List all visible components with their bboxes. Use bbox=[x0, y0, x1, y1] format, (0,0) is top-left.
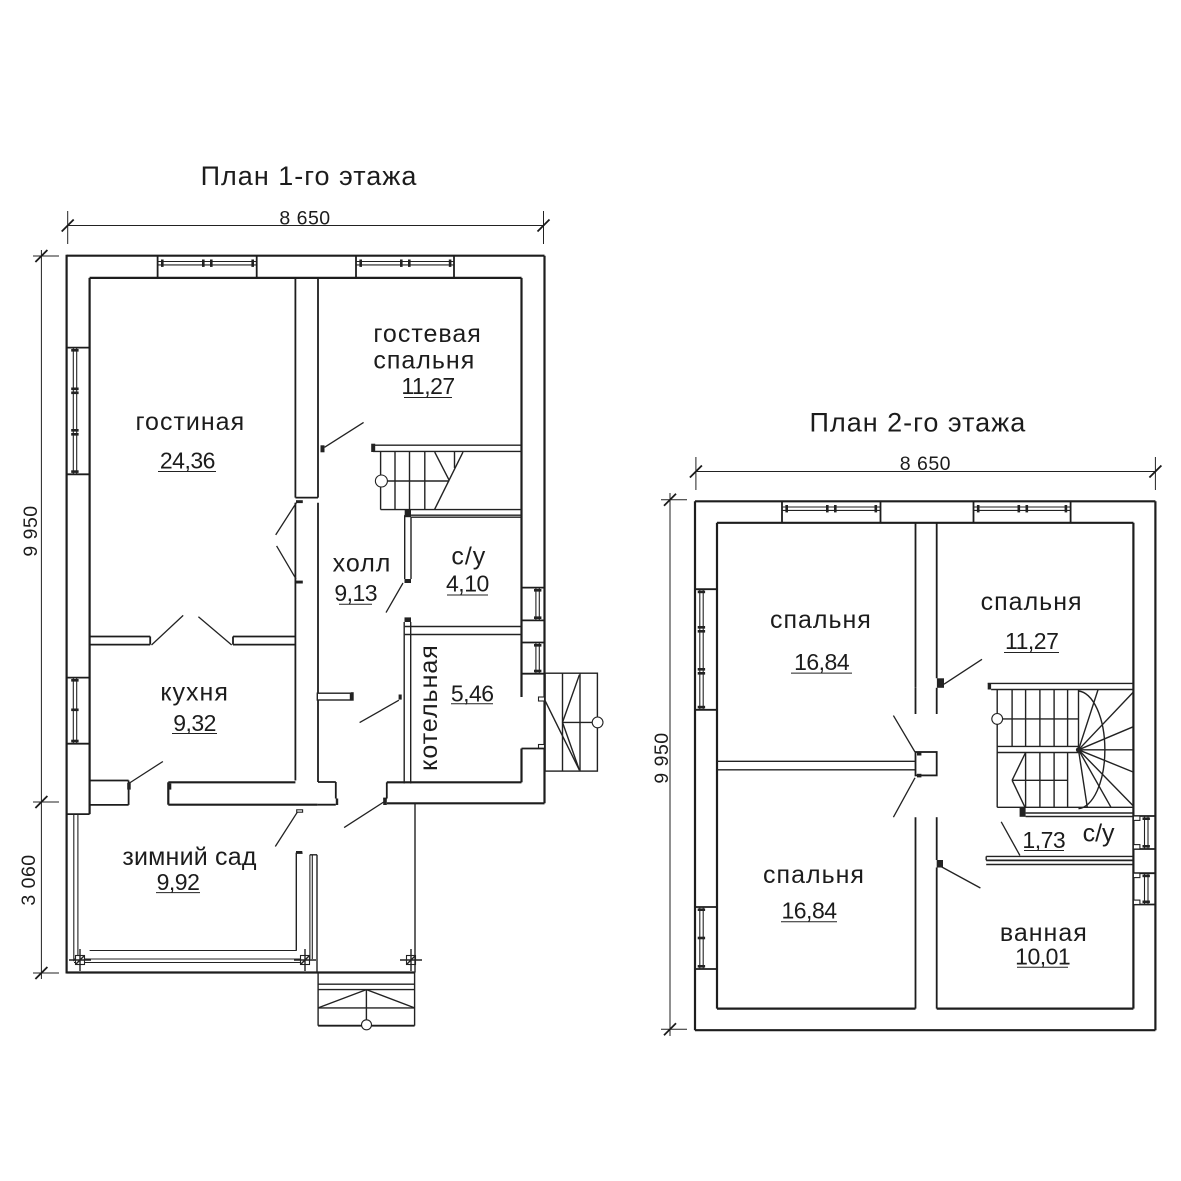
svg-text:9,13: 9,13 bbox=[334, 580, 377, 606]
svg-text:9 950: 9 950 bbox=[20, 505, 42, 556]
svg-text:11,27: 11,27 bbox=[1005, 628, 1058, 654]
svg-text:9 950: 9 950 bbox=[651, 732, 673, 783]
svg-text:8 650: 8 650 bbox=[279, 208, 330, 230]
svg-text:3 060: 3 060 bbox=[18, 854, 40, 905]
svg-text:спальня: спальня bbox=[981, 588, 1083, 616]
svg-text:8 650: 8 650 bbox=[900, 453, 951, 475]
svg-text:холл: холл bbox=[333, 549, 392, 577]
svg-text:1,73: 1,73 bbox=[1022, 827, 1065, 853]
svg-text:зимний сад: зимний сад bbox=[122, 843, 257, 871]
svg-text:План 2-го этажа: План 2-го этажа bbox=[810, 408, 1027, 438]
svg-text:10,01: 10,01 bbox=[1015, 944, 1070, 970]
svg-text:котельная: котельная bbox=[415, 644, 443, 771]
svg-text:9,32: 9,32 bbox=[173, 710, 216, 736]
svg-text:16,84: 16,84 bbox=[794, 649, 850, 675]
svg-text:16,84: 16,84 bbox=[781, 898, 837, 924]
svg-text:11,27: 11,27 bbox=[401, 373, 454, 399]
svg-text:с/у: с/у bbox=[451, 543, 486, 571]
svg-text:5,46: 5,46 bbox=[451, 681, 494, 707]
svg-text:спальня: спальня bbox=[770, 606, 872, 634]
svg-text:гостиная: гостиная bbox=[135, 408, 245, 436]
svg-text:с/у: с/у bbox=[1083, 820, 1115, 848]
svg-text:спальня: спальня bbox=[763, 861, 865, 889]
svg-text:4,10: 4,10 bbox=[446, 570, 489, 596]
svg-text:План 1-го этажа: План 1-го этажа bbox=[201, 161, 418, 191]
svg-text:9,92: 9,92 bbox=[157, 869, 200, 895]
svg-text:24,36: 24,36 bbox=[160, 448, 215, 474]
svg-text:гостевая: гостевая bbox=[373, 320, 482, 348]
svg-text:кухня: кухня bbox=[160, 679, 229, 707]
svg-text:спальня: спальня bbox=[373, 347, 475, 375]
